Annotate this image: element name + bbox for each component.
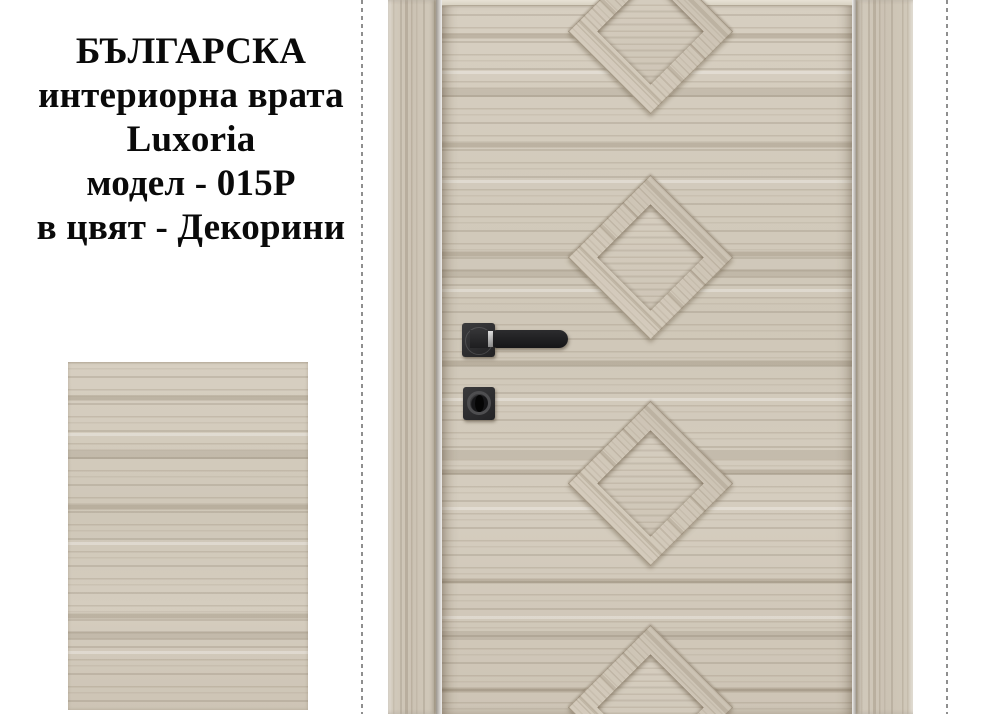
product-title-block: БЪЛГАРСКА интериорна врата Luxoria модел…: [4, 30, 378, 250]
door-leaf: [442, 0, 852, 714]
diamond-applique-1: [568, 0, 733, 114]
diamond-applique-3: [568, 401, 733, 566]
product-color-line: в цвят - Декорини: [4, 206, 378, 250]
wood-finish-swatch: [68, 362, 308, 710]
diamond-applique-3-inset: [597, 430, 703, 536]
diamond-applique-2-inset: [597, 204, 703, 310]
product-brand-line: Luxoria: [4, 118, 378, 162]
door-frame-right: [856, 0, 913, 714]
product-model-line: модел - 015P: [4, 162, 378, 206]
door-frame-left: [388, 0, 436, 714]
product-country-line: БЪЛГАРСКА: [4, 30, 378, 74]
diamond-applique-1-inset: [597, 0, 703, 85]
product-type-line: интериорна врата: [4, 74, 378, 118]
door-advert-canvas: БЪЛГАРСКА интериорна врата Luxoria модел…: [0, 0, 1000, 714]
keyhole-slot: [475, 395, 484, 412]
diamond-applique-4: [568, 625, 733, 714]
door-handle-neck: [470, 330, 488, 348]
diamond-applique-2: [568, 175, 733, 340]
dashed-divider-right: [946, 0, 948, 714]
keyhole-escutcheon: [463, 387, 495, 420]
diamond-applique-4-inset: [597, 654, 703, 714]
door-handle-lever: [493, 330, 568, 348]
door-photo: [388, 0, 913, 714]
